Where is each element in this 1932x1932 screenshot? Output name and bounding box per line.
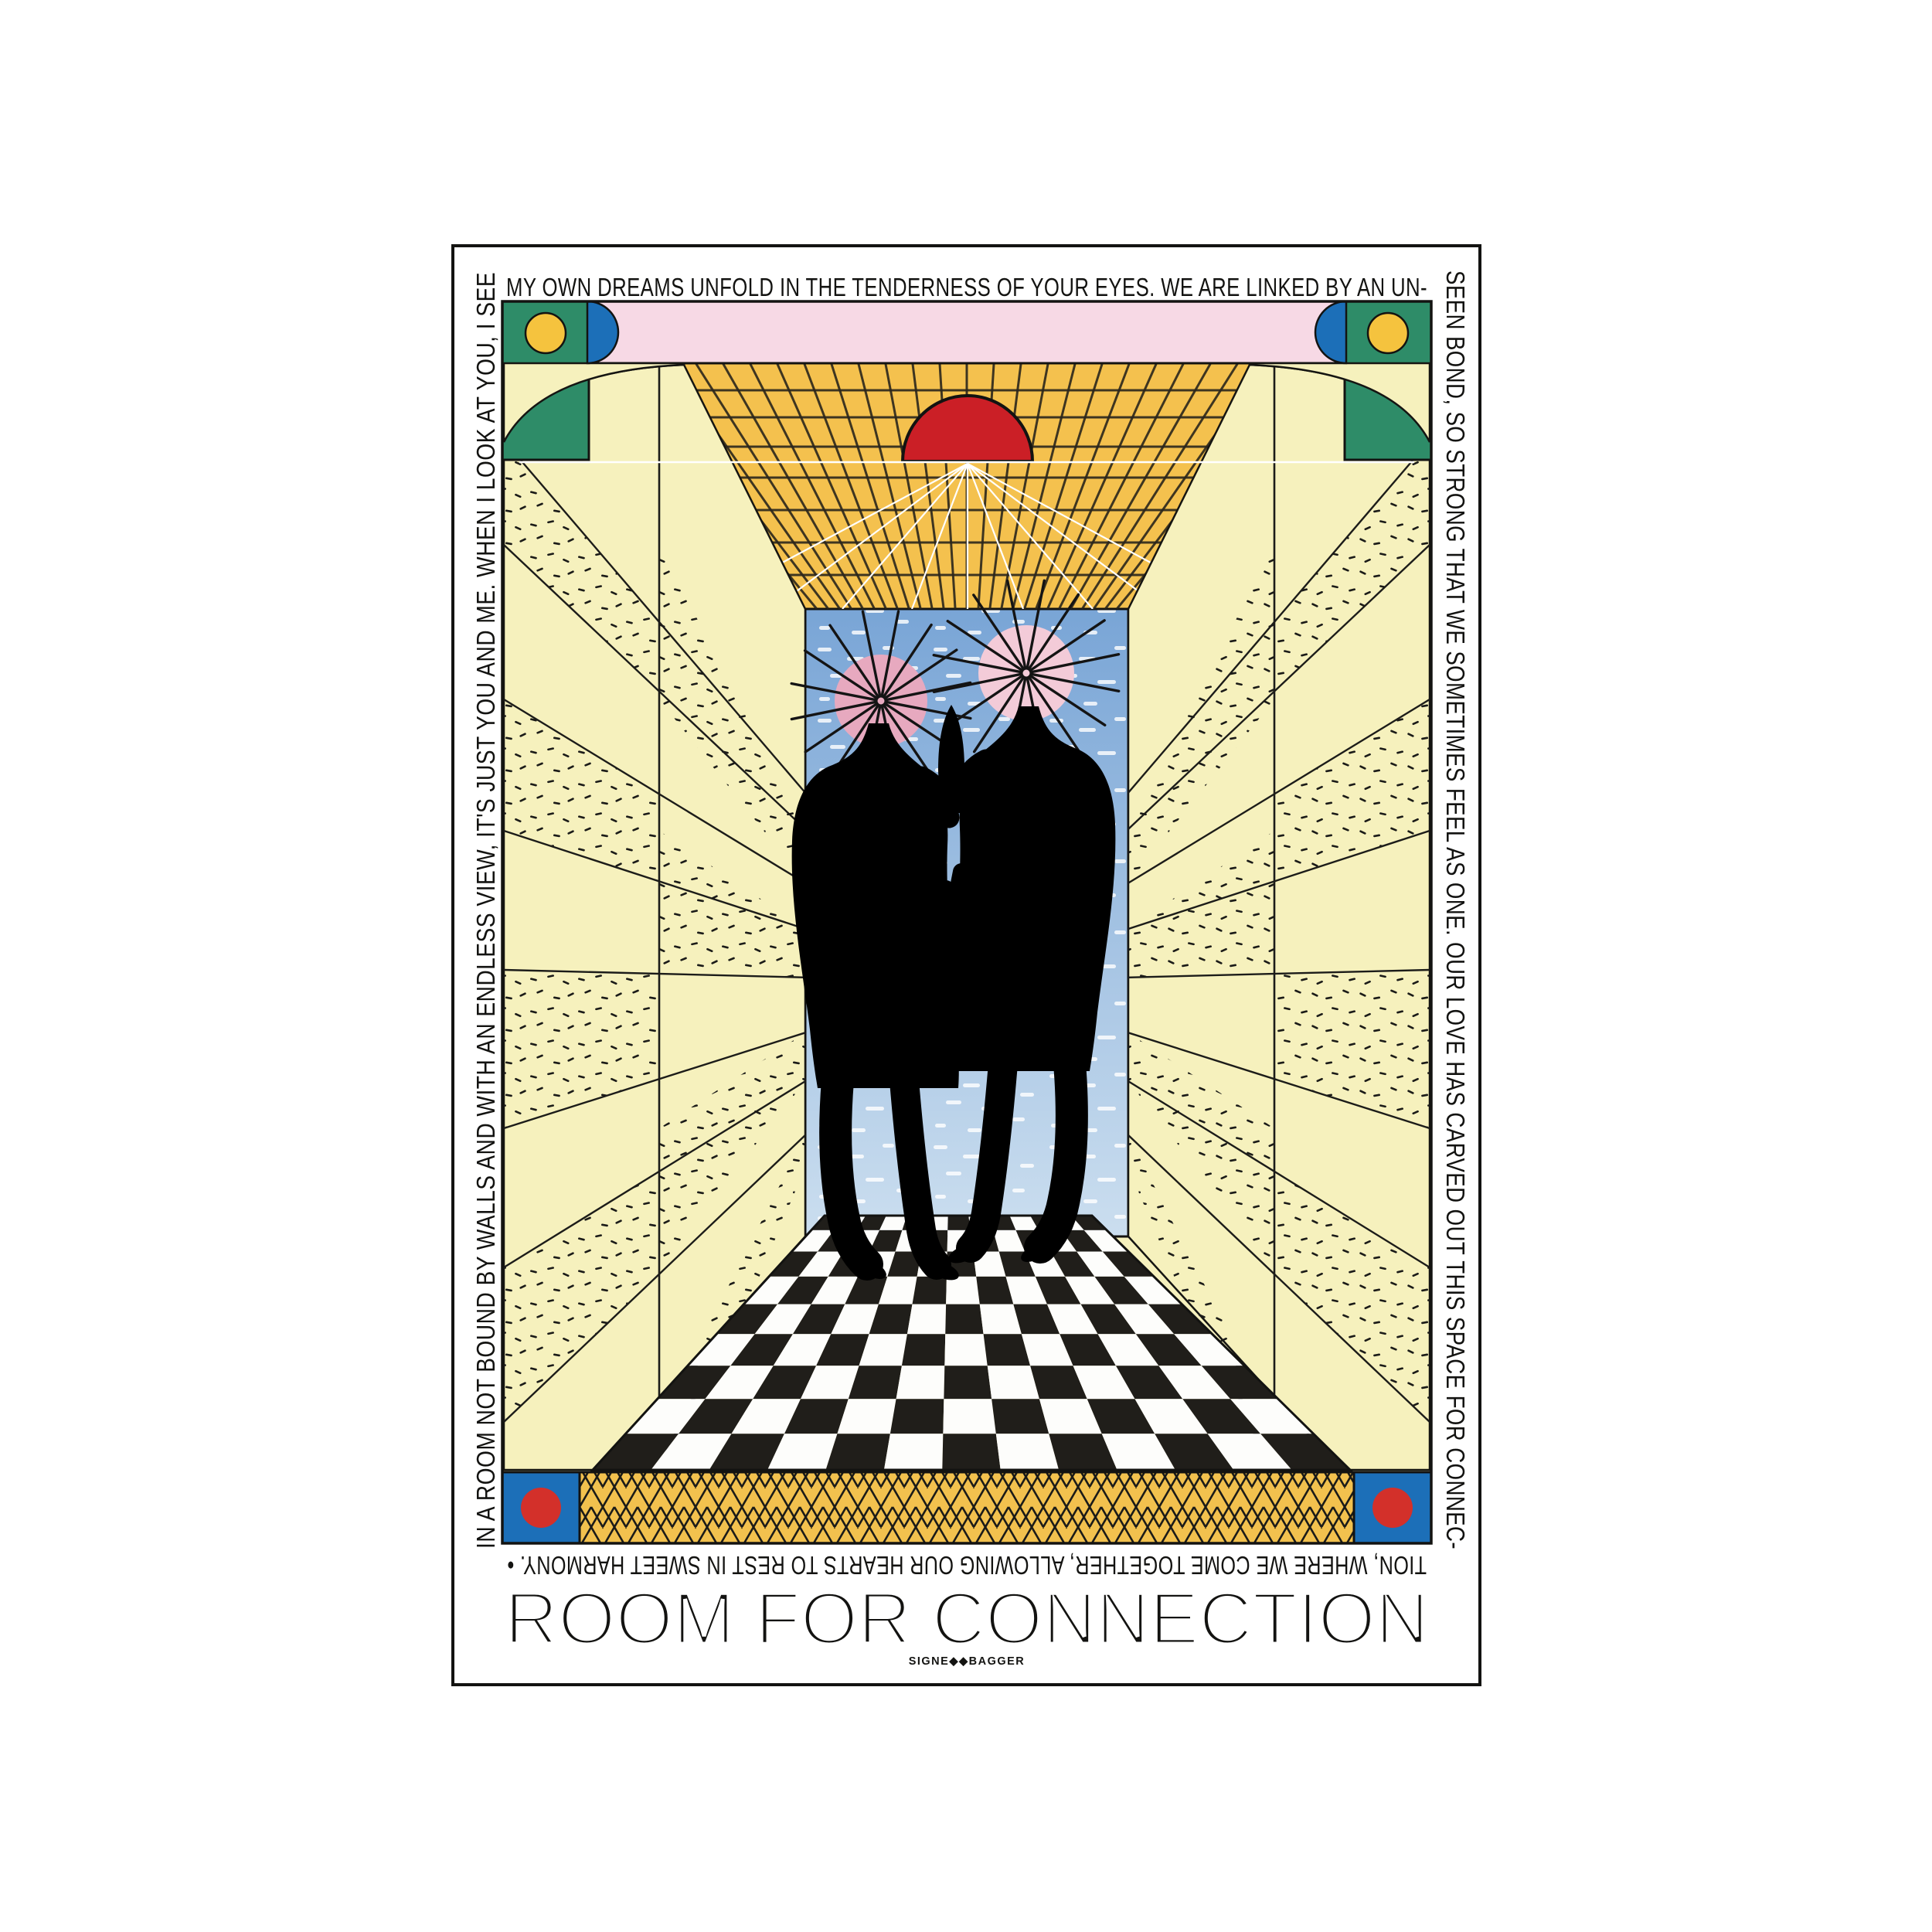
border-text-right: SEEN BOND, SO STRONG THAT WE SOMETIMES F… bbox=[1441, 270, 1470, 1549]
border-text-bottom: TION, WHERE WE COME TOGETHER, ALLOWING O… bbox=[507, 1551, 1427, 1580]
red-dot-left bbox=[521, 1488, 561, 1528]
poster-artwork: MY OWN DREAMS UNFOLD IN THE TENDERNESS O… bbox=[451, 243, 1482, 1687]
yellow-dot-right bbox=[1368, 313, 1408, 353]
poster-title: ROOM FOR CONNECTION bbox=[505, 1577, 1429, 1660]
border-text-top: MY OWN DREAMS UNFOLD IN THE TENDERNESS O… bbox=[506, 273, 1427, 301]
artist-credit: SIGNE◆◆BAGGER bbox=[909, 1655, 1026, 1668]
red-dot-right bbox=[1372, 1488, 1413, 1528]
clasped-hands bbox=[947, 978, 984, 1025]
border-text-left: IN A ROOM NOT BOUND BY WALLS AND WITH AN… bbox=[471, 272, 500, 1549]
bottom-frieze bbox=[502, 1472, 1431, 1543]
pink-band bbox=[502, 301, 1431, 363]
lattice-pattern bbox=[580, 1472, 1354, 1543]
artwork-scene bbox=[502, 301, 1431, 1543]
yellow-dot-left bbox=[526, 313, 566, 353]
page-background: MY OWN DREAMS UNFOLD IN THE TENDERNESS O… bbox=[0, 0, 1932, 1932]
